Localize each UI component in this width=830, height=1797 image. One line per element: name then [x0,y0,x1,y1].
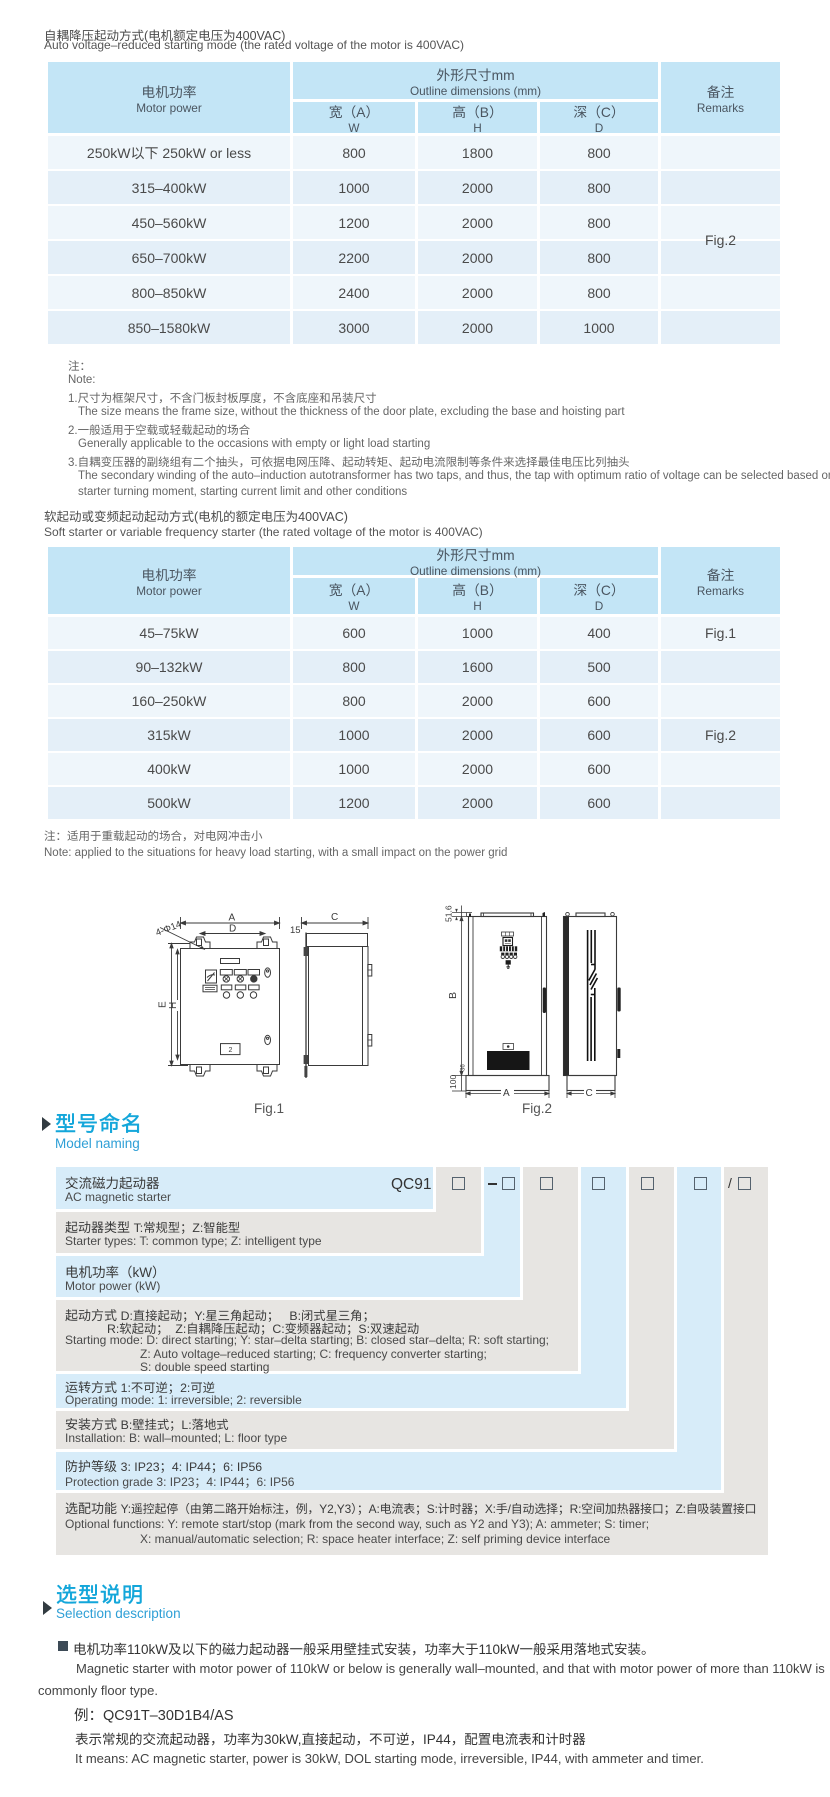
svg-text:B: B [447,992,459,999]
svg-text:A: A [503,1088,510,1099]
svg-text:4-Φ14: 4-Φ14 [154,919,183,939]
svg-text:C: C [586,1088,593,1099]
svg-text:A: A [229,913,236,924]
svg-text:36: 36 [461,1064,467,1071]
svg-text:H: H [168,1002,179,1009]
svg-text:D: D [229,924,236,935]
svg-text:C: C [331,912,338,923]
svg-text:100: 100 [448,1075,458,1089]
svg-text:51.6: 51.6 [444,905,454,922]
svg-text:15: 15 [290,925,301,936]
svg-text:2: 2 [229,1047,233,1054]
